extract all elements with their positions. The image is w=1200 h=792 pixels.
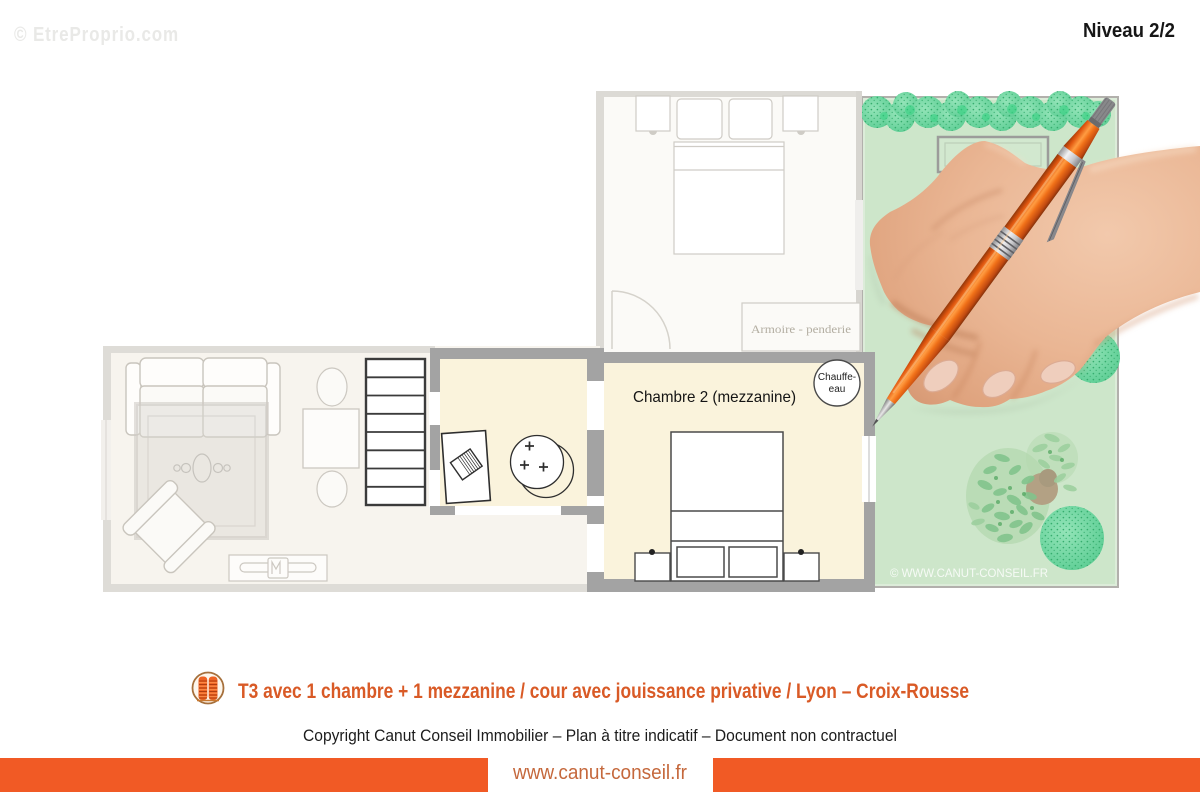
- svg-text:Niveau 2/2: Niveau 2/2: [1083, 20, 1175, 42]
- svg-text:eau: eau: [829, 384, 846, 395]
- svg-text:Armoire - penderie: Armoire - penderie: [751, 322, 851, 336]
- svg-text:Chambre 2 (mezzanine): Chambre 2 (mezzanine): [633, 389, 796, 406]
- svg-text:T3 avec 1 chambre + 1 mezzanin: T3 avec 1 chambre + 1 mezzanine / cour a…: [238, 680, 969, 703]
- svg-text:Copyright Canut Conseil Immobi: Copyright Canut Conseil Immobilier – Pla…: [303, 727, 897, 745]
- svg-text:www.canut-conseil.fr: www.canut-conseil.fr: [512, 762, 687, 784]
- svg-text:© EtreProprio.com: © EtreProprio.com: [14, 24, 179, 46]
- svg-text:Chauffe-: Chauffe-: [818, 372, 856, 383]
- svg-text:© WWW.CANUT-CONSEIL.FR: © WWW.CANUT-CONSEIL.FR: [890, 568, 1048, 580]
